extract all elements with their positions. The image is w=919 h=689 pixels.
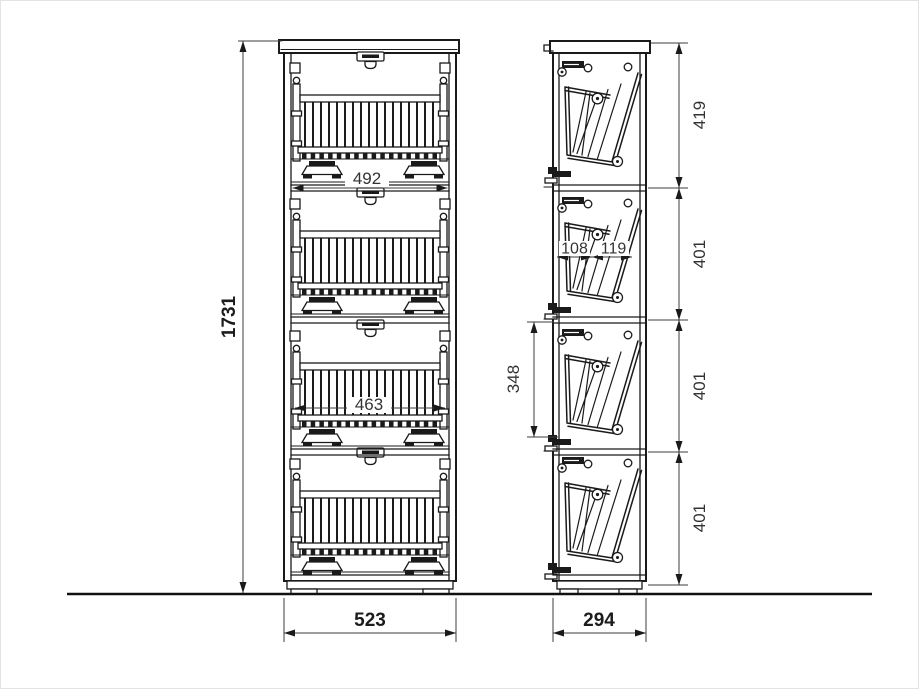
dim-basket-depth-rear-label: 108 xyxy=(561,241,588,258)
dim-section-height-3-label: 401 xyxy=(690,372,709,400)
side-view xyxy=(544,41,650,594)
dim-section-heights: 419 401 401 401 xyxy=(648,43,709,585)
front-base-plinth xyxy=(287,581,453,594)
dim-cabinet-depth: 294 xyxy=(553,598,646,642)
dim-shelf-spacing-label: 348 xyxy=(504,365,523,393)
dim-section-height-1-label: 419 xyxy=(690,101,709,129)
dim-section-height-4-label: 401 xyxy=(690,504,709,532)
cabinet-technical-drawing: 1731 523 294 492 xyxy=(1,1,919,689)
front-view xyxy=(279,40,459,594)
dim-cabinet-depth-label: 294 xyxy=(583,610,615,631)
dim-opening-width-label: 492 xyxy=(353,169,381,188)
dim-section-height-2-label: 401 xyxy=(690,240,709,268)
dim-basket-width-label: 463 xyxy=(355,395,383,414)
dim-basket-depth-front-label: 119 xyxy=(601,241,627,258)
side-base-plinth xyxy=(557,581,642,594)
technical-drawing-page: 1731 523 294 492 xyxy=(0,0,919,689)
side-top-panel xyxy=(550,41,650,53)
dim-overall-height: 1731 xyxy=(219,41,282,593)
dim-shelf-spacing: 348 xyxy=(504,322,558,437)
dim-cabinet-width-label: 523 xyxy=(354,610,386,631)
front-top-panel xyxy=(279,40,459,53)
dim-cabinet-width: 523 xyxy=(284,598,456,642)
dim-overall-height-label: 1731 xyxy=(219,295,240,338)
